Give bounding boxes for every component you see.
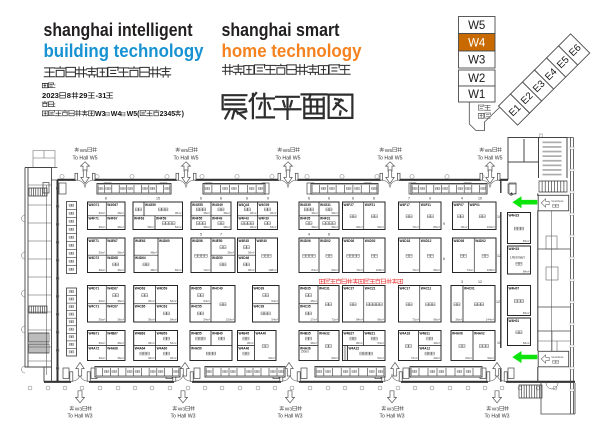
svg-text:108m²: 108m² (376, 268, 384, 272)
svg-text:W4G59: W4G59 (145, 203, 156, 207)
svg-text:12: 12 (496, 300, 500, 304)
svg-text:W4H01: W4H01 (509, 319, 520, 323)
svg-text:home technology: home technology (222, 41, 362, 61)
svg-text:W4B67: W4B67 (107, 331, 118, 335)
svg-text:): ) (182, 111, 184, 118)
svg-text:6: 6 (328, 233, 330, 237)
svg-text:5: 5 (200, 233, 202, 237)
svg-text:W4G71: W4G71 (89, 203, 100, 207)
svg-text:W4B11: W4B11 (420, 331, 431, 335)
svg-text:36m²: 36m² (148, 317, 155, 321)
svg-text:W4G35: W4G35 (300, 203, 311, 207)
svg-text:W4F67: W4F67 (107, 217, 118, 221)
svg-text:Vestibule: Vestibule (551, 355, 564, 359)
svg-text:To Hall W5: To Hall W5 (173, 155, 198, 161)
svg-text:W4D64: W4D64 (135, 256, 146, 260)
svg-text:90m²: 90m² (487, 356, 494, 360)
svg-text:W4D18: W4D18 (400, 239, 411, 243)
svg-text:W4A72: W4A72 (89, 346, 100, 350)
svg-text:W4G55: W4G55 (192, 203, 203, 207)
svg-text:72m²: 72m² (356, 268, 363, 272)
svg-text:W4G31: W4G31 (320, 203, 331, 207)
svg-text:36m²: 36m² (248, 251, 255, 255)
svg-text:W4: W4 (111, 111, 122, 118)
svg-text:84m²: 84m² (356, 317, 363, 321)
svg-text:36m²: 36m² (356, 341, 363, 345)
svg-text:W4D06: W4D06 (300, 239, 311, 243)
svg-text:9: 9 (443, 222, 445, 226)
svg-text:7: 7 (408, 197, 410, 201)
svg-text:W4F71: W4F71 (89, 217, 100, 221)
svg-text:3: 3 (461, 280, 463, 284)
svg-text:8: 8 (67, 91, 71, 100)
svg-text:W4A32: W4A32 (319, 331, 330, 335)
svg-text:W4C31: W4C31 (319, 286, 330, 290)
svg-text:W4C55: W4C55 (191, 305, 202, 309)
svg-text:36m²: 36m² (99, 299, 106, 303)
svg-text:W4B27: W4B27 (344, 331, 355, 335)
svg-text:40m²: 40m² (433, 356, 440, 360)
svg-text:W5: W5 (485, 148, 493, 154)
svg-text:W4C11: W4C11 (421, 286, 432, 290)
svg-text:W4A60: W4A60 (157, 346, 168, 350)
svg-text:W4D56: W4D56 (192, 239, 203, 243)
svg-text:96m²: 96m² (433, 268, 440, 272)
svg-text:W3: W3 (95, 111, 106, 118)
svg-text:W4D39: W4D39 (254, 286, 265, 290)
svg-text:To Hall W5: To Hall W5 (72, 155, 97, 161)
svg-text:12: 12 (478, 280, 482, 284)
svg-text:40m²: 40m² (433, 341, 440, 345)
svg-text:54m²: 54m² (203, 317, 210, 321)
svg-text:36m²: 36m² (99, 341, 106, 345)
svg-text:Vestibule: Vestibule (551, 199, 564, 203)
svg-text:W4F55: W4F55 (192, 217, 203, 221)
svg-text:W4E40: W4E40 (257, 239, 268, 243)
svg-text:W4D46: W4D46 (239, 256, 250, 260)
svg-text:54m²: 54m² (270, 225, 277, 229)
svg-text:W4B21: W4B21 (365, 331, 376, 335)
svg-text:36m²: 36m² (250, 225, 257, 229)
svg-text:W5: W5 (385, 148, 393, 154)
svg-text:-31: -31 (96, 91, 108, 100)
svg-text:W4E63: W4E63 (135, 239, 146, 243)
svg-text:W4D67: W4D67 (107, 286, 118, 290)
svg-text:52m²: 52m² (377, 356, 384, 360)
svg-text:100m²: 100m² (226, 317, 234, 321)
svg-text:54m²: 54m² (170, 317, 177, 321)
svg-text:60m²: 60m² (465, 356, 472, 360)
svg-text:36m²: 36m² (117, 299, 124, 303)
svg-text:W4C49: W4C49 (212, 286, 223, 290)
svg-text:W5: W5 (283, 148, 291, 154)
svg-text:36m²: 36m² (223, 225, 230, 229)
svg-text:W4B35: W4B35 (300, 331, 311, 335)
svg-text:W4B55: W4B55 (191, 331, 202, 335)
svg-text:144m²: 144m² (486, 317, 494, 321)
svg-text:6: 6 (352, 197, 354, 201)
svg-text:36m²: 36m² (311, 211, 318, 215)
svg-text:W4C63: W4C63 (157, 305, 168, 309)
svg-text:9: 9 (429, 197, 431, 201)
svg-text:27m²: 27m² (310, 317, 317, 321)
svg-text:54m²: 54m² (203, 299, 210, 303)
svg-text:W4D63: W4D63 (135, 286, 146, 290)
svg-text:W4A02: W4A02 (474, 331, 485, 335)
svg-text:W4E45: W4E45 (239, 239, 250, 243)
svg-text:building technology: building technology (44, 41, 204, 61)
svg-text:36m²: 36m² (203, 225, 210, 229)
svg-text:W5(: W5( (127, 111, 141, 118)
svg-text:W4A22: W4A22 (349, 346, 360, 350)
svg-text:72m²: 72m² (412, 317, 419, 321)
svg-text:W4G67: W4G67 (107, 203, 118, 207)
svg-text:W4A50: W4A50 (191, 346, 202, 350)
svg-text:To Hall W5: To Hall W5 (377, 155, 402, 161)
svg-text:54m²: 54m² (271, 317, 278, 321)
svg-text:W4G49: W4G49 (212, 203, 223, 207)
svg-text:W4E67: W4E67 (107, 239, 118, 243)
svg-text:W4C67: W4C67 (107, 305, 118, 309)
svg-text:60m²: 60m² (331, 268, 338, 272)
svg-text:6: 6 (200, 197, 202, 201)
svg-text:36m²: 36m² (147, 225, 154, 229)
svg-text:W4F01: W4F01 (470, 203, 481, 207)
svg-text:36m²: 36m² (270, 211, 277, 215)
svg-text:36m²: 36m² (99, 317, 106, 321)
svg-text:W3: W3 (285, 407, 293, 413)
svg-text:36m²: 36m² (99, 356, 106, 360)
svg-text::: : (54, 102, 56, 109)
svg-text:36m²: 36m² (117, 356, 124, 360)
svg-text:60m²: 60m² (331, 356, 338, 360)
svg-text:W4D71: W4D71 (89, 286, 100, 290)
svg-text:W4B63: W4B63 (135, 331, 146, 335)
svg-text:W4H15: W4H15 (509, 247, 520, 251)
svg-text:84m²: 84m² (523, 269, 530, 273)
svg-text:40m²: 40m² (461, 225, 468, 229)
svg-text:W3: W3 (75, 407, 83, 413)
svg-text:W3: W3 (387, 407, 395, 413)
svg-text:W4C71: W4C71 (89, 305, 100, 309)
svg-text:36m²: 36m² (247, 341, 254, 345)
svg-text:36m²: 36m² (223, 211, 230, 215)
svg-text:72m²: 72m² (203, 268, 210, 272)
svg-text:6: 6 (328, 197, 330, 201)
svg-text:W4A40: W4A40 (256, 331, 267, 335)
svg-text:W4F11: W4F11 (421, 203, 431, 207)
svg-text:36m²: 36m² (117, 211, 124, 215)
svg-text:60m²: 60m² (356, 225, 363, 229)
svg-text:96m²: 96m² (377, 317, 384, 321)
svg-text:36m²: 36m² (227, 251, 234, 255)
svg-text:W4D55: W4D55 (191, 286, 202, 290)
svg-text:W4D50: W4D50 (212, 256, 223, 260)
svg-text:W4D02: W4D02 (365, 239, 376, 243)
svg-text:W3: W3 (178, 407, 186, 413)
svg-text:To Hall W3: To Hall W3 (379, 414, 404, 420)
svg-text:W4F39: W4F39 (259, 217, 270, 221)
svg-text:W4C01: W4C01 (464, 286, 475, 290)
svg-text:W5: W5 (181, 148, 189, 154)
svg-text:W4F27: W4F27 (344, 203, 355, 207)
svg-text:W4D35: W4D35 (300, 286, 311, 290)
svg-text:shanghai smart: shanghai smart (222, 20, 340, 40)
svg-text:W4G39: W4G39 (259, 203, 270, 207)
svg-text:36m²: 36m² (117, 317, 124, 321)
svg-text:84m²: 84m² (311, 268, 318, 272)
svg-text:6: 6 (443, 257, 445, 261)
svg-text:To Hall W3: To Hall W3 (170, 414, 195, 420)
svg-text:W4D68: W4D68 (107, 256, 118, 260)
svg-text:54m²: 54m² (175, 225, 182, 229)
svg-text:W4Q43: W4Q43 (239, 203, 250, 207)
svg-text:W2: W2 (468, 73, 485, 85)
svg-text:W3: W3 (468, 55, 485, 67)
svg-text:36m²: 36m² (311, 225, 318, 229)
svg-text:W1: W1 (468, 89, 485, 101)
svg-text:2023: 2023 (42, 91, 59, 100)
svg-text:6: 6 (373, 197, 375, 201)
svg-text:36m²: 36m² (99, 251, 106, 255)
svg-text:To Hall W5: To Hall W5 (477, 155, 502, 161)
svg-text:36m²: 36m² (99, 211, 106, 215)
svg-text:36m²: 36m² (170, 356, 177, 360)
svg-text:6: 6 (308, 197, 310, 201)
svg-text:72m²: 72m² (412, 225, 419, 229)
svg-text:W5: W5 (468, 20, 485, 32)
svg-text:72m²: 72m² (467, 268, 474, 272)
svg-text:W4C27: W4C27 (344, 286, 355, 290)
svg-text:108m²: 108m² (268, 268, 276, 272)
svg-text:To Hall W3: To Hall W3 (277, 414, 302, 420)
svg-text:W4B45: W4B45 (239, 331, 250, 335)
svg-text:W4E50: W4E50 (212, 239, 223, 243)
svg-text:36m²: 36m² (455, 317, 462, 321)
svg-text:72m²: 72m² (411, 356, 418, 360)
svg-text:84m²: 84m² (523, 341, 530, 345)
svg-text:29: 29 (79, 91, 87, 100)
svg-text:36m²: 36m² (99, 268, 106, 272)
svg-text:36m²: 36m² (117, 268, 124, 272)
svg-text:W4C65: W4C65 (135, 305, 146, 309)
svg-text:To Hall W5: To Hall W5 (275, 155, 300, 161)
svg-text:W4A18: W4A18 (400, 331, 411, 335)
svg-text:84m²: 84m² (523, 311, 530, 315)
svg-text:W4A08: W4A08 (452, 331, 463, 335)
svg-text:W4F63: W4F63 (134, 217, 145, 221)
svg-text:shanghai intelligent: shanghai intelligent (44, 20, 193, 40)
svg-text:LifeSmart: LifeSmart (510, 256, 525, 260)
svg-text:W4D59: W4D59 (157, 286, 168, 290)
svg-text:W3: W3 (492, 407, 500, 413)
svg-text:84m²: 84m² (523, 239, 530, 243)
svg-text:[*]: [*] (539, 132, 543, 137)
svg-text:80m²: 80m² (433, 225, 440, 229)
svg-text:W4D60: W4D60 (159, 239, 170, 243)
svg-text:W4B59: W4B59 (157, 331, 168, 335)
svg-text:54m²: 54m² (170, 341, 177, 345)
svg-text:W5: W5 (80, 148, 88, 154)
svg-text:72m²: 72m² (412, 268, 419, 272)
svg-text:W4A12: W4A12 (420, 346, 431, 350)
svg-text:9: 9 (267, 197, 269, 201)
svg-text:W4E71: W4E71 (89, 239, 100, 243)
svg-text:10: 10 (478, 197, 482, 201)
svg-text:48m²: 48m² (150, 251, 157, 255)
svg-text:W4D08: W4D08 (454, 239, 465, 243)
svg-text:7: 7 (220, 233, 222, 237)
svg-text:W4F43: W4F43 (239, 217, 250, 221)
svg-text:W4H23: W4H23 (509, 213, 520, 217)
svg-text:54m²: 54m² (377, 341, 384, 345)
svg-text:36m²: 36m² (175, 211, 182, 215)
svg-text:W4F07: W4F07 (454, 203, 465, 207)
svg-text:36m²: 36m² (117, 341, 124, 345)
svg-text:6: 6 (220, 197, 222, 201)
svg-text:108m²: 108m² (487, 268, 495, 272)
svg-text:72m²: 72m² (331, 317, 338, 321)
svg-text:96m²: 96m² (433, 317, 440, 321)
svg-text:36m²: 36m² (250, 211, 257, 215)
svg-text:6: 6 (246, 197, 248, 201)
svg-text:W4B71: W4B71 (89, 331, 100, 335)
svg-text:To Hall W3: To Hall W3 (67, 414, 92, 420)
svg-text:54m²: 54m² (271, 299, 278, 303)
svg-text:10: 10 (497, 215, 501, 219)
svg-text:36m²: 36m² (148, 356, 155, 360)
svg-text:W4A64: W4A64 (135, 346, 146, 350)
svg-text:W4B49: W4B49 (212, 331, 223, 335)
svg-text:36m²: 36m² (148, 299, 155, 303)
svg-text:90m²: 90m² (377, 225, 384, 229)
svg-text:15: 15 (156, 197, 160, 201)
svg-text:W4F31: W4F31 (320, 217, 331, 221)
svg-text:4: 4 (308, 233, 310, 237)
svg-text:W4F59: W4F59 (156, 217, 167, 221)
svg-text:W4D72: W4D72 (89, 256, 100, 260)
svg-text:W4H07: W4H07 (509, 286, 520, 290)
svg-text:W4A68: W4A68 (107, 346, 118, 350)
svg-text:W4: W4 (468, 38, 486, 50)
svg-text:W4D12: W4D12 (421, 239, 432, 243)
svg-text:36m²: 36m² (203, 211, 210, 215)
svg-text:W4F21: W4F21 (365, 203, 376, 207)
svg-text:36m²: 36m² (248, 268, 255, 272)
svg-text:48m²: 48m² (150, 268, 157, 272)
svg-text:45m²: 45m² (310, 299, 317, 303)
svg-text:W4D02: W4D02 (320, 239, 331, 243)
svg-text:36m²: 36m² (331, 225, 338, 229)
svg-text:W4C39: W4C39 (254, 305, 265, 309)
svg-text:W4C21: W4C21 (365, 286, 376, 290)
svg-text:36m²: 36m² (99, 225, 106, 229)
svg-text:36m²: 36m² (117, 251, 124, 255)
svg-text:90m²: 90m² (268, 356, 275, 360)
svg-text:To Hall W3: To Hall W3 (484, 414, 509, 420)
svg-text:10: 10 (497, 341, 501, 345)
svg-text:36m²: 36m² (117, 225, 124, 229)
svg-text:W4F49: W4F49 (212, 217, 223, 221)
svg-text:4: 4 (461, 197, 463, 201)
svg-text:36m²: 36m² (310, 341, 317, 345)
svg-text:W4D08: W4D08 (344, 239, 355, 243)
svg-text:W4D02: W4D02 (475, 239, 486, 243)
svg-text:6: 6 (105, 197, 107, 201)
svg-text:84m²: 84m² (175, 268, 182, 272)
svg-text:Zidoo: Zidoo (301, 350, 309, 354)
svg-text:36m²: 36m² (331, 211, 338, 215)
svg-text::: : (54, 83, 56, 90)
svg-text:100m²: 100m² (487, 225, 495, 229)
svg-text:W4A46: W4A46 (239, 346, 250, 350)
svg-text:W4C35: W4C35 (300, 305, 311, 309)
svg-text:W4F17: W4F17 (400, 203, 411, 207)
svg-text:W4C17: W4C17 (400, 286, 411, 290)
svg-text:2345: 2345 (160, 111, 176, 118)
svg-text:54m²: 54m² (170, 299, 177, 303)
svg-text:W4F35: W4F35 (300, 217, 311, 221)
svg-text:12: 12 (497, 254, 501, 258)
svg-text:36m²: 36m² (148, 341, 155, 345)
